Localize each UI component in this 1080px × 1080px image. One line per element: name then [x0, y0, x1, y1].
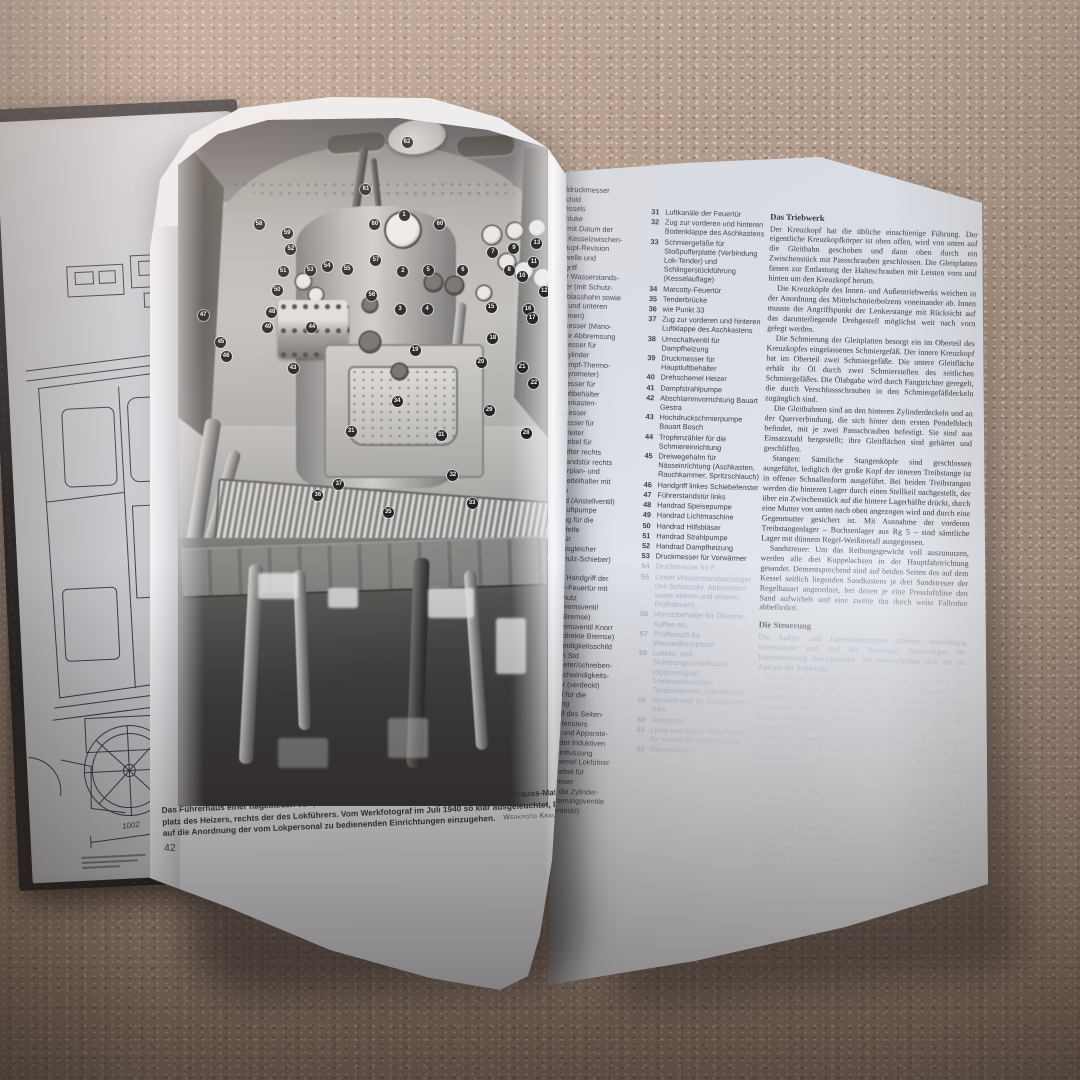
lighting-overlay	[0, 0, 1080, 1080]
book-photo-scene: 1002 sseldruckmesserrikschilds Kesselsas…	[0, 0, 1080, 1080]
